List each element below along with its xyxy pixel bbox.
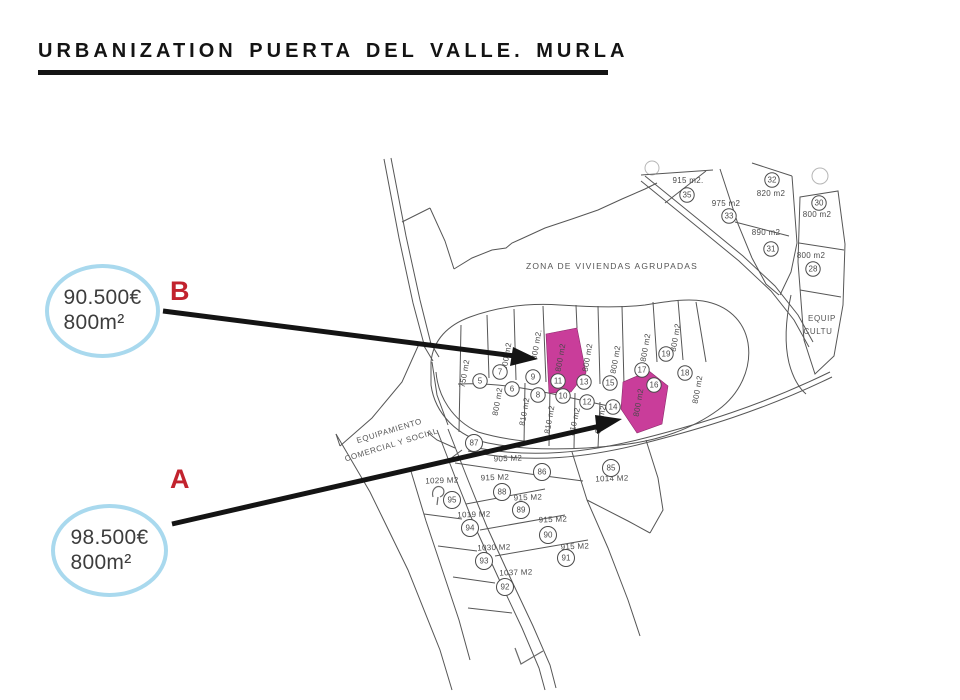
plot-95-area-label: 1029 M2 <box>425 475 459 485</box>
plot-11-number: 11 <box>554 377 563 386</box>
plot-87-number: 87 <box>470 439 479 448</box>
plot-86-number: 86 <box>538 468 547 477</box>
flag-symbol <box>433 487 444 505</box>
flyer-page: URBANIZATION PUERTA DEL VALLE. MURLA <box>0 0 960 700</box>
plot-10-number: 10 <box>559 392 568 401</box>
partial-plot-circle-top <box>645 161 659 175</box>
plot-30-number: 30 <box>815 199 824 208</box>
price-a: 98.500€ <box>70 526 148 551</box>
plot-35-area-label: 915 m2. <box>672 176 703 185</box>
plot-95-number: 95 <box>448 496 457 505</box>
plot-28-number: 28 <box>809 265 818 274</box>
area-a: 800m² <box>70 551 148 576</box>
check-mark <box>515 648 543 664</box>
plot-8-area-label: 810 m2 <box>518 397 532 427</box>
plot-6-area-label: 800 m2 <box>491 387 505 417</box>
plot-6-number: 6 <box>510 385 515 394</box>
plot-13-area-label: 800 m2 <box>581 343 595 373</box>
price-bubble-b: 90.500€ 800m² <box>45 264 160 358</box>
plot-32-area-label: 820 m2 <box>757 189 786 198</box>
plot-89-area-label: 915 M2 <box>514 492 543 502</box>
plot-16-number: 16 <box>650 381 659 390</box>
svg-text:CULTU: CULTU <box>803 327 832 336</box>
plot-31-number: 31 <box>767 245 776 254</box>
plot-14-number: 14 <box>609 403 618 412</box>
plot-88-number: 88 <box>498 488 507 497</box>
equip-left-label: EQUIPAMIENTO COMERCIAL Y SOCIAL <box>340 413 439 463</box>
plot-19-number: 19 <box>662 350 671 359</box>
plot-28-area-label: 800 m2 <box>797 251 826 260</box>
plot-9-area-label: 800 m2. <box>529 329 543 361</box>
plot-10-area-label: 810 m2 <box>543 405 557 435</box>
plot-5-number: 5 <box>478 377 483 386</box>
plot-33-area-label: 975 m2 <box>712 199 741 208</box>
plot-94-number: 94 <box>466 524 475 533</box>
plot-17-number: 17 <box>638 366 647 375</box>
plot-30-area-label: 800 m2 <box>803 210 832 219</box>
plot-19-area-label: 800 m2 <box>669 323 683 353</box>
plot-90-number: 90 <box>544 531 553 540</box>
plot-92-number: 92 <box>501 583 510 592</box>
plot-88-area-label: 915 M2 <box>481 472 510 482</box>
plot-15-area-label: 800 m2 <box>609 345 623 375</box>
plot-93-number: 93 <box>480 557 489 566</box>
svg-text:EQUIP: EQUIP <box>808 314 836 323</box>
plot-91-number: 91 <box>562 554 571 563</box>
equip-right-label: EQUIP CULTU <box>803 314 835 336</box>
plot-9-number: 9 <box>531 373 536 382</box>
plot-93-area-label: 1030 M2 <box>477 542 511 552</box>
arrow-b-to-plot-11 <box>163 311 538 366</box>
plot-86-area-label: 905 M2 <box>494 453 523 463</box>
label-letter-a: A <box>170 464 190 495</box>
plot-94-area-label: 1019 M2 <box>457 509 491 519</box>
arrow-a-head <box>595 415 622 434</box>
plot-8-number: 8 <box>536 391 541 400</box>
label-letter-b: B <box>170 276 190 307</box>
plot-7-number: 7 <box>498 368 503 377</box>
partial-plot-circle-right <box>812 168 828 184</box>
plot-18-number: 18 <box>681 369 690 378</box>
road-left <box>384 159 425 348</box>
area-b: 800m² <box>63 311 141 336</box>
plot-12-number: 12 <box>583 398 592 407</box>
plot-90-area-label: 915 M2 <box>539 514 568 524</box>
highlighted-plot-16 <box>621 371 668 433</box>
plot-15-number: 15 <box>606 379 615 388</box>
plot-17-area-label: 800 m2 <box>639 333 653 363</box>
plot-92-area-label: 1037 M2 <box>499 567 533 577</box>
plot-35-number: 35 <box>683 191 692 200</box>
plot-89-number: 89 <box>517 506 526 515</box>
price-bubble-a: 98.500€ 800m² <box>51 504 168 597</box>
plot-31-area-label: 890 m2 <box>752 228 781 237</box>
price-b: 90.500€ <box>63 286 141 311</box>
urbanization-map: 915 m2.35975 m233820 m232890 m231800 m23… <box>0 0 960 700</box>
plot-85-number: 85 <box>607 464 616 473</box>
plot-32-number: 32 <box>768 176 777 185</box>
zone-label: ZONA DE VIVIENDAS AGRUPADAS <box>526 261 698 271</box>
plot-18-area-label: 800 m2 <box>691 375 705 405</box>
plot-33-number: 33 <box>725 212 734 221</box>
plot-13-number: 13 <box>580 378 589 387</box>
zone-boundary <box>454 183 657 269</box>
